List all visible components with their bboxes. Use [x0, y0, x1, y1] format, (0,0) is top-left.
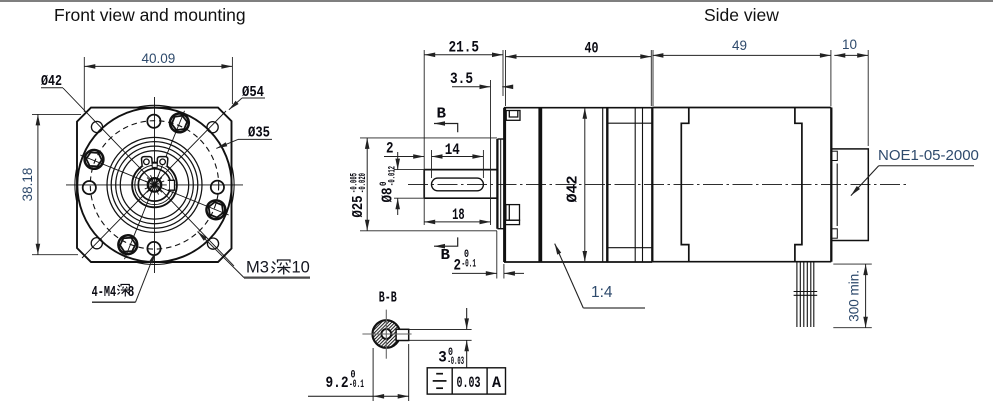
svg-text:-0.020: -0.020 [358, 173, 369, 193]
svg-text:3.5: 3.5 [450, 70, 473, 88]
svg-text:M3: M3 [246, 259, 269, 277]
svg-text:9.2: 9.2 [326, 374, 349, 392]
svg-text:B-B: B-B [379, 290, 397, 307]
svg-text:2: 2 [386, 140, 394, 158]
svg-text:Side view: Side view [704, 5, 779, 25]
svg-text:NOE1-05-2000: NOE1-05-2000 [878, 147, 979, 164]
svg-text:300 min.: 300 min. [847, 270, 862, 322]
svg-text:1:4: 1:4 [591, 284, 613, 301]
svg-text:-0.1: -0.1 [462, 259, 477, 271]
svg-text:21.5: 21.5 [449, 39, 480, 57]
svg-text:-0.012: -0.012 [388, 166, 399, 186]
svg-text:18: 18 [452, 206, 465, 224]
svg-text:-0.03: -0.03 [448, 356, 465, 368]
svg-text:Ø8: Ø8 [381, 188, 397, 203]
svg-text:A: A [492, 374, 501, 392]
svg-text:-0.1: -0.1 [349, 379, 364, 391]
svg-text:38.18: 38.18 [20, 168, 35, 202]
svg-text:40.09: 40.09 [142, 51, 176, 66]
svg-text:8: 8 [128, 285, 135, 301]
svg-text:B: B [437, 106, 447, 123]
svg-text:49: 49 [732, 38, 747, 53]
svg-text:Ø25: Ø25 [351, 196, 367, 218]
svg-text:Ø42: Ø42 [565, 176, 582, 203]
svg-text:4-M4: 4-M4 [92, 285, 117, 301]
svg-text:10: 10 [292, 259, 310, 277]
svg-text:B: B [441, 247, 451, 264]
svg-text:Front view and mounting: Front view and mounting [54, 5, 246, 25]
svg-text:14: 14 [445, 141, 460, 159]
svg-text:2: 2 [454, 257, 462, 275]
svg-text:40: 40 [585, 40, 599, 58]
svg-text:3: 3 [438, 349, 447, 367]
svg-text:0.03: 0.03 [457, 374, 481, 392]
svg-text:10: 10 [842, 37, 857, 52]
